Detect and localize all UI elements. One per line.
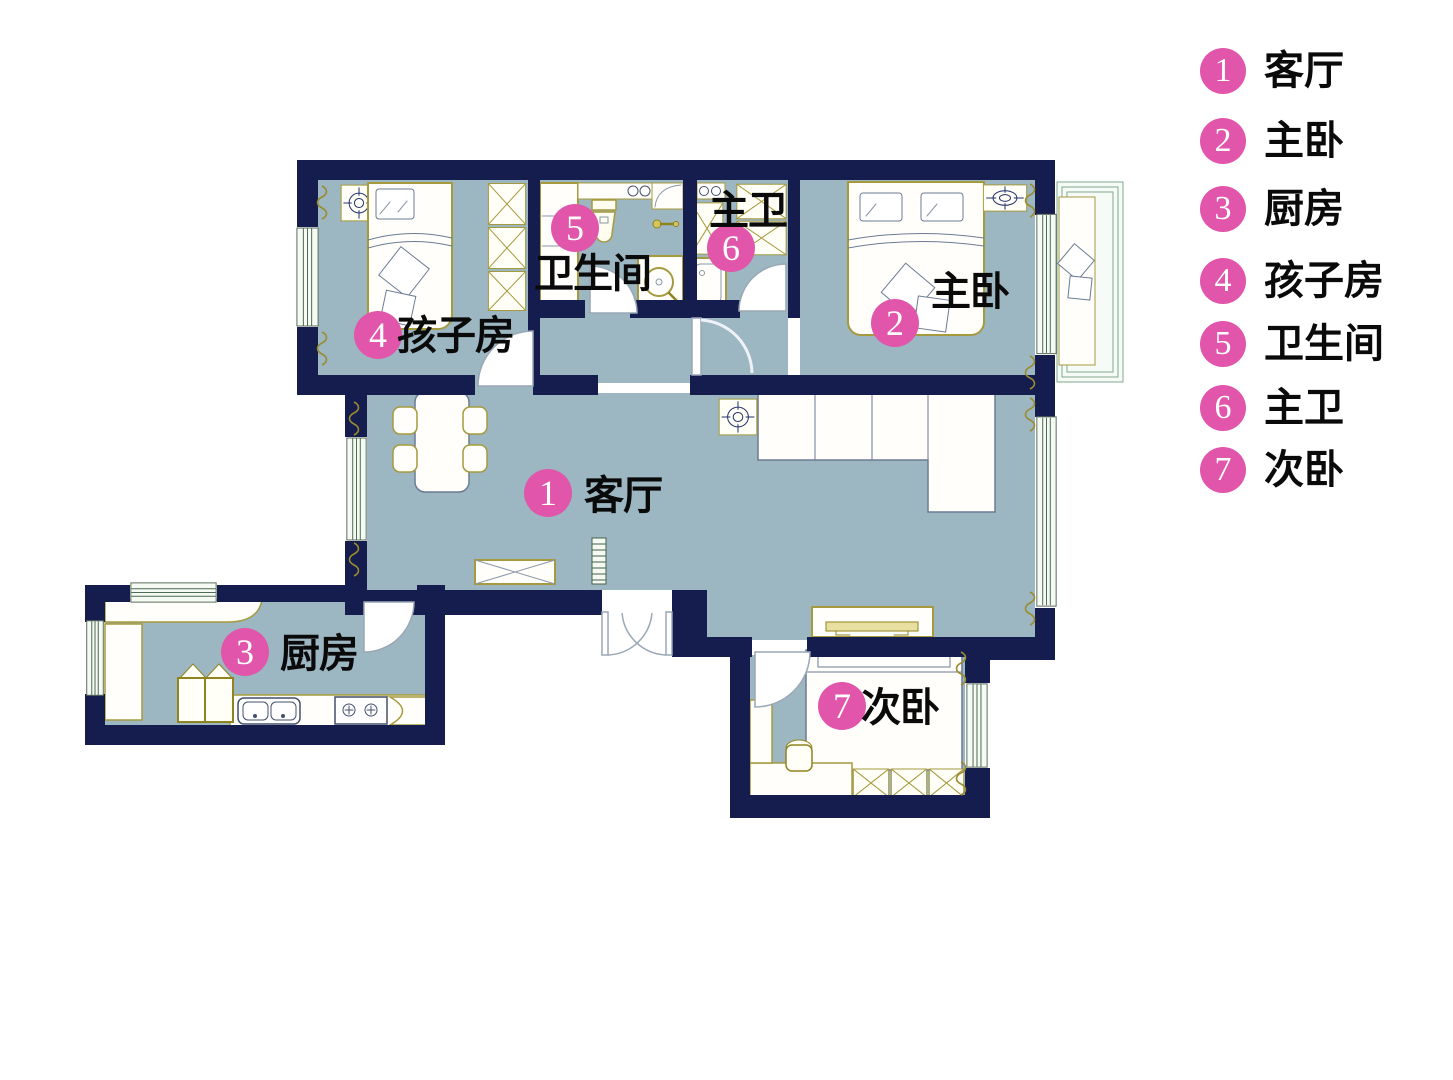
shelf: [750, 700, 772, 763]
window-living-right: [1037, 417, 1056, 606]
legend-label: 次卧: [1264, 450, 1344, 490]
bay-window: [1057, 182, 1123, 382]
room-badge-kitchen: 3: [221, 628, 269, 676]
legend-item-5: 5 卫生间: [1200, 321, 1384, 367]
legend-label: 卫生间: [1264, 324, 1384, 364]
room-label-bathroom: 卫生间: [534, 254, 651, 294]
room-label-master-bath: 主卫: [709, 191, 787, 231]
radiator-icon: [719, 399, 757, 435]
room-badge-living: 1: [524, 469, 572, 517]
legend-item-1: 1 客厅: [1200, 48, 1344, 94]
legend-badge: 7: [1200, 447, 1246, 493]
legend-label: 主卫: [1264, 388, 1344, 428]
room-badge-master: 2: [871, 299, 919, 347]
room-label-kitchen: 厨房: [280, 634, 358, 674]
legend: 1 客厅 2 主卧 3 厨房 4 孩子房 5 卫生间 6 主卫 7 次卧: [1200, 0, 1450, 520]
legend-label: 客厅: [1264, 51, 1344, 91]
ladder-radiator: [592, 538, 606, 584]
floorplan-page: 1 客厅 2 主卧 3 厨房 4 孩子房 5 卫生间 6 主卫 7 次卧 1 客…: [0, 0, 1453, 1080]
room-label-second: 次卧: [861, 688, 939, 728]
window-child-room: [297, 228, 318, 326]
legend-item-2: 2 主卧: [1200, 118, 1344, 164]
window-kitchen-left: [87, 621, 104, 695]
legend-item-4: 4 孩子房: [1200, 258, 1384, 304]
legend-badge: 3: [1200, 186, 1246, 232]
legend-label: 孩子房: [1264, 261, 1384, 301]
legend-item-3: 3 厨房: [1200, 186, 1344, 232]
room-label-child: 孩子房: [397, 316, 514, 356]
stove: [335, 697, 387, 724]
window-kitchen-top: [131, 583, 216, 602]
stool: [786, 740, 812, 771]
entrance-double-door: [602, 590, 672, 655]
room-label-living: 客厅: [584, 476, 662, 516]
kitchen-sink: [238, 698, 300, 724]
legend-badge: 6: [1200, 385, 1246, 431]
hall-threshold: [598, 383, 690, 393]
door-master-bedroom: [692, 318, 701, 375]
window-master: [1037, 214, 1056, 353]
room-badge-bathroom: 5: [551, 204, 599, 252]
legend-badge: 5: [1200, 321, 1246, 367]
legend-label: 主卧: [1264, 121, 1344, 161]
shoe-cabinet: [475, 560, 555, 584]
legend-label: 厨房: [1264, 189, 1344, 229]
window-living-left: [347, 438, 366, 540]
room-label-master: 主卧: [931, 272, 1009, 312]
legend-item-6: 6 主卫: [1200, 385, 1344, 431]
secondary-wardrobe: [853, 769, 963, 797]
room-badge-child: 4: [354, 311, 402, 359]
room-badge-second: 7: [818, 682, 866, 730]
kitchen-tall-cabinet: [105, 624, 142, 720]
legend-badge: 4: [1200, 258, 1246, 304]
legend-badge: 1: [1200, 48, 1246, 94]
child-room-furniture: [341, 183, 525, 329]
radiator-icon: [983, 185, 1026, 211]
legend-item-7: 7 次卧: [1200, 447, 1344, 493]
child-wardrobe: [488, 184, 525, 311]
tv-cabinet: [812, 607, 933, 637]
legend-badge: 2: [1200, 118, 1246, 164]
window-second-bedroom: [967, 684, 987, 767]
kitchen-top-counter: [105, 600, 262, 622]
